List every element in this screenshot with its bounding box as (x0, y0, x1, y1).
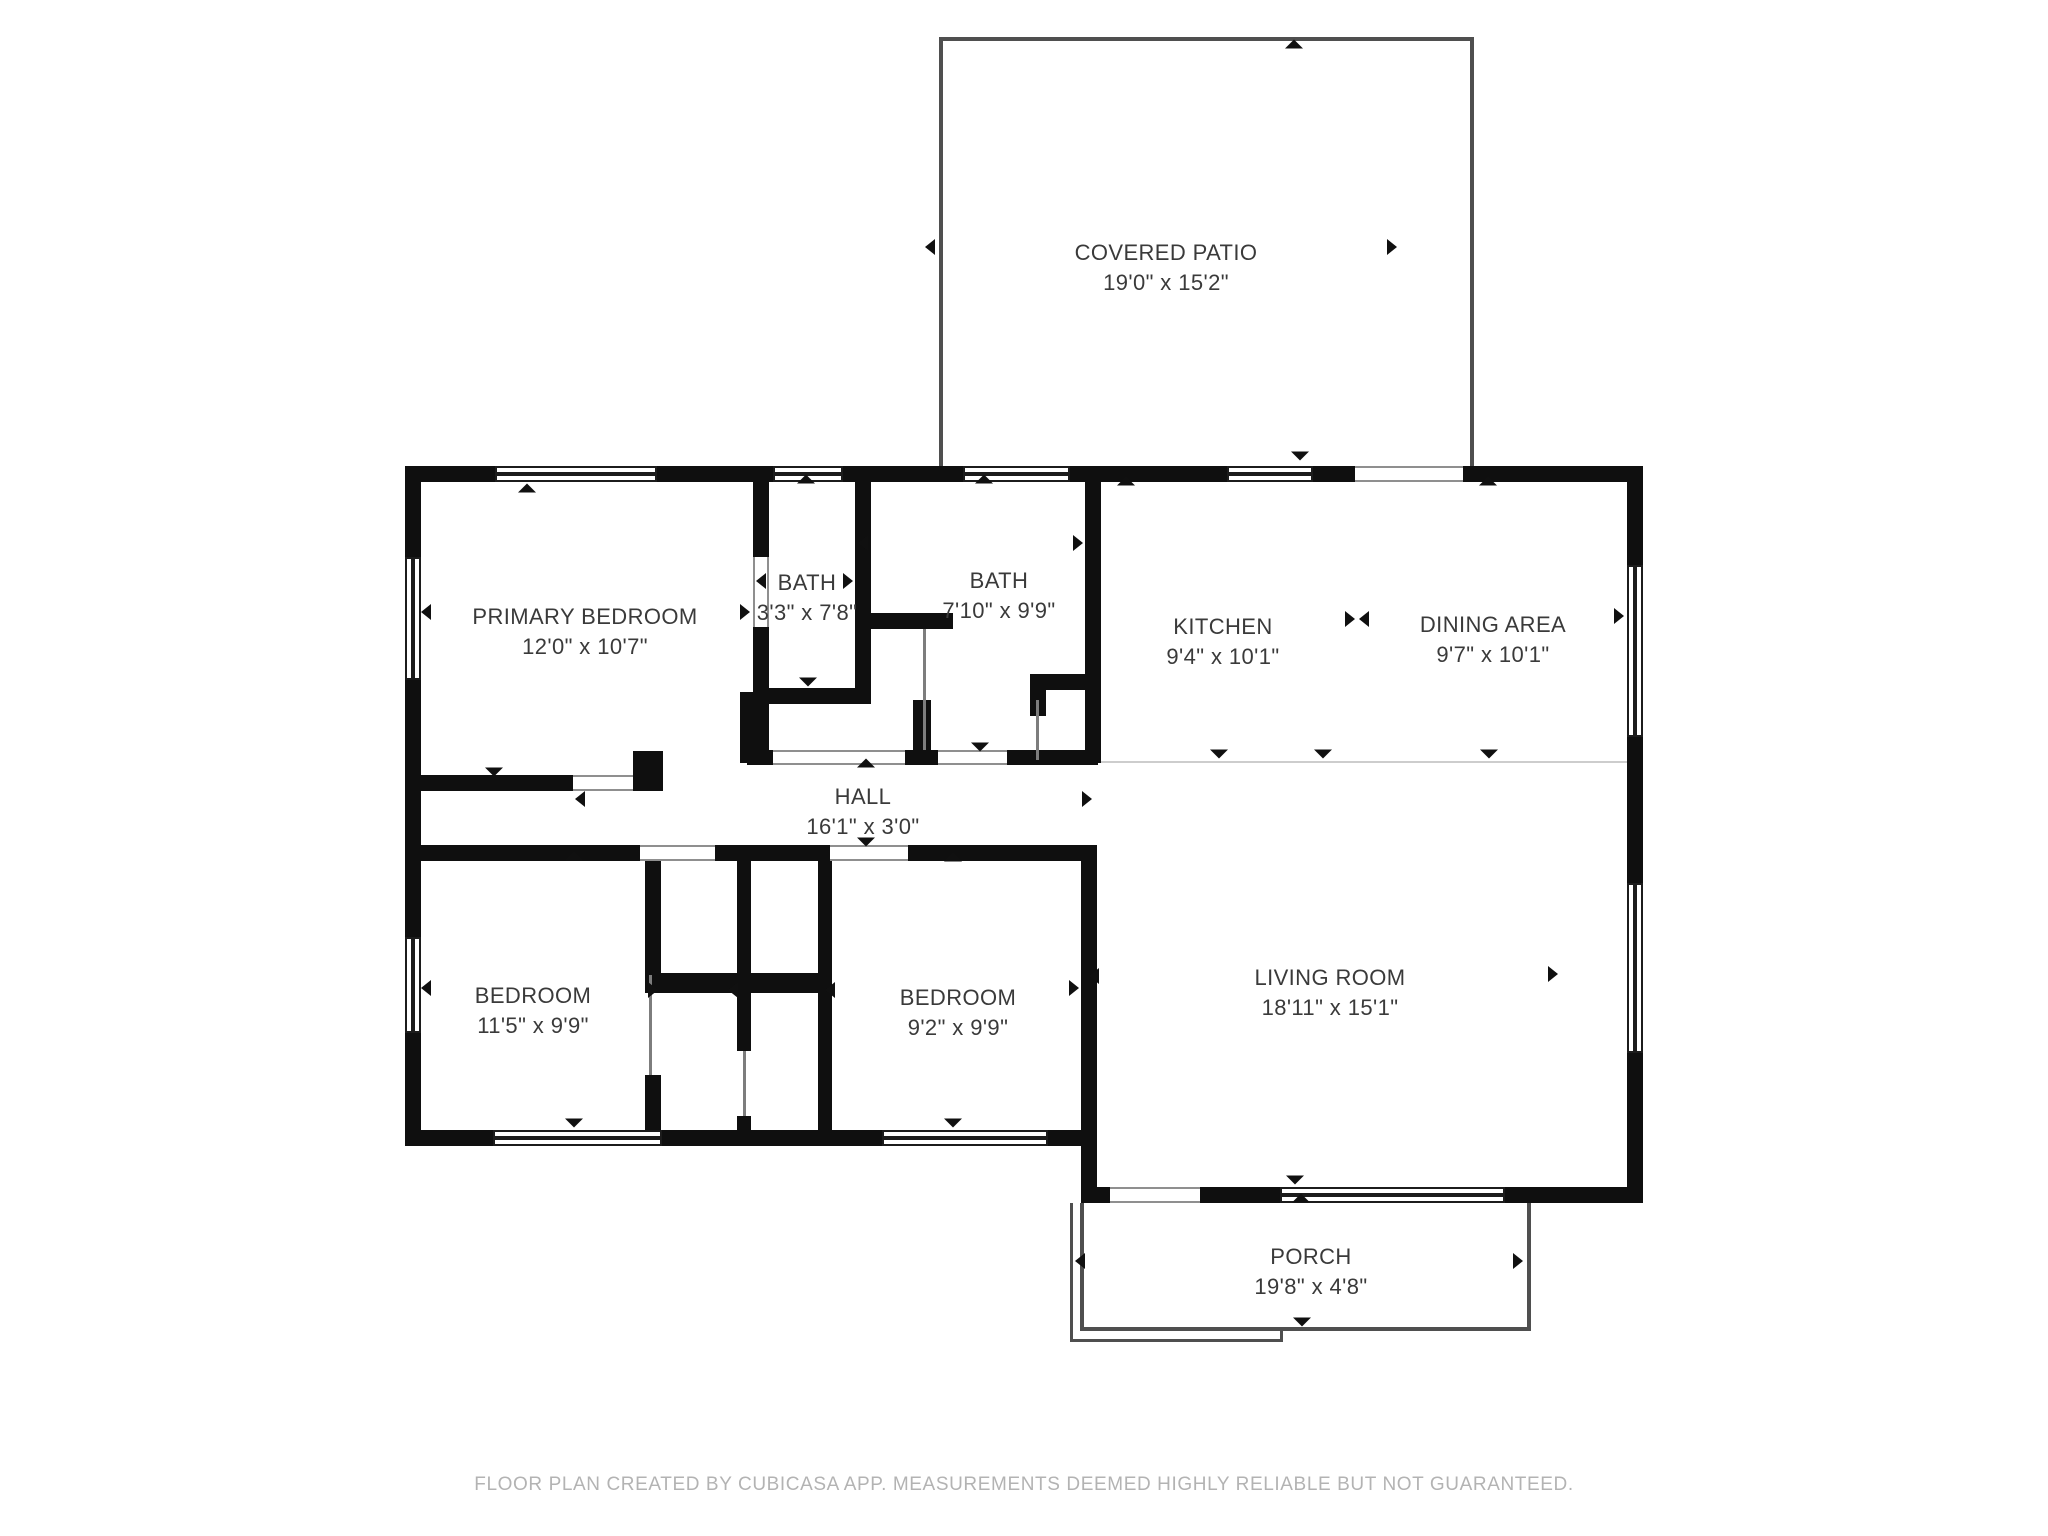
wall (405, 1130, 493, 1146)
measure-arrow-up-icon (518, 484, 536, 493)
window (1227, 466, 1313, 482)
window (1280, 1187, 1505, 1203)
thin-wall (1527, 1203, 1531, 1331)
measure-arrow-down-icon (1286, 1176, 1304, 1185)
door-leaf-line (743, 1051, 746, 1116)
wall (843, 466, 963, 482)
window (405, 557, 421, 680)
room-label: PORCH19'8" x 4'8" (1254, 1242, 1367, 1302)
measure-arrow-right-icon (1513, 1253, 1523, 1269)
wall (753, 688, 855, 704)
room-name: BEDROOM (475, 981, 591, 1011)
door-opening (830, 845, 908, 861)
wall (905, 750, 938, 765)
measure-arrow-up-icon (857, 759, 875, 768)
measure-arrow-up-icon (1285, 40, 1303, 49)
measure-arrow-down-icon (799, 678, 817, 687)
window-glazing (497, 472, 655, 476)
wall (715, 845, 830, 861)
measure-arrow-right-icon (648, 982, 658, 998)
wall (737, 1116, 751, 1132)
window-glazing (1633, 885, 1637, 1051)
room-name: COVERED PATIO (1075, 238, 1258, 268)
measure-arrow-left-icon (1089, 968, 1099, 984)
measure-arrow-left-icon (825, 982, 835, 998)
room-dimensions: 9'7" x 10'1" (1420, 640, 1566, 670)
wall (747, 750, 773, 765)
room-dimensions: 12'0" x 10'7" (472, 632, 697, 662)
footer-disclaimer: FLOOR PLAN CREATED BY CUBICASA APP. MEAS… (0, 1474, 2048, 1496)
measure-arrow-down-icon (1480, 750, 1498, 759)
wall (1081, 861, 1097, 1203)
measure-arrow-up-icon (1117, 477, 1135, 486)
wall (753, 482, 769, 557)
wall (855, 613, 953, 629)
door-leaf-line (923, 629, 926, 750)
wall (1030, 674, 1101, 690)
wall (1627, 466, 1643, 565)
window-glazing (411, 939, 415, 1031)
measure-arrow-right-icon (1069, 980, 1079, 996)
thin-wall (939, 37, 1474, 41)
measure-arrow-down-icon (1210, 750, 1228, 759)
wall (662, 1130, 882, 1146)
thin-wall (1470, 37, 1474, 466)
window (1627, 565, 1643, 737)
room-label: KITCHEN9'4" x 10'1" (1166, 612, 1279, 672)
wall (645, 861, 661, 975)
door-leaf-line (1036, 700, 1039, 760)
thin-wall (1070, 1203, 1073, 1342)
door-opening (773, 750, 905, 765)
window-glazing (495, 1136, 660, 1140)
measure-arrow-left-icon (728, 982, 738, 998)
wall (633, 751, 663, 791)
room-label: LIVING ROOM18'11" x 15'1" (1254, 963, 1405, 1023)
measure-arrow-up-icon (565, 852, 583, 861)
room-dimensions: 7'10" x 9'9" (942, 596, 1055, 626)
measure-arrow-up-icon (797, 475, 815, 484)
measure-arrow-right-icon (1082, 791, 1092, 807)
measure-arrow-right-icon (1548, 966, 1558, 982)
room-dimensions: 11'5" x 9'9" (475, 1011, 591, 1041)
measure-arrow-up-icon (1479, 477, 1497, 486)
room-label: PRIMARY BEDROOM12'0" x 10'7" (472, 602, 697, 662)
wall (657, 466, 773, 482)
thin-wall (1080, 1327, 1531, 1331)
wall (421, 845, 640, 861)
door-opening (1355, 466, 1463, 482)
measure-arrow-left-icon (1075, 1253, 1085, 1269)
wall (908, 845, 1097, 861)
thin-wall (939, 37, 943, 466)
room-dimensions: 3'3" x 7'8" (757, 598, 858, 628)
room-name: LIVING ROOM (1254, 963, 1405, 993)
window (495, 466, 657, 482)
measure-arrow-down-icon (1291, 452, 1309, 461)
thin-wall (1280, 1331, 1283, 1342)
measure-arrow-down-icon (565, 1119, 583, 1128)
measure-arrow-right-icon (1387, 239, 1397, 255)
measure-arrow-right-icon (740, 604, 750, 620)
room-name: DINING AREA (1420, 610, 1566, 640)
measure-arrow-right-icon (1345, 611, 1355, 627)
room-name: HALL (806, 782, 919, 812)
window-glazing (411, 559, 415, 678)
room-dimensions: 9'2" x 9'9" (900, 1013, 1016, 1043)
measure-arrow-right-icon (1073, 535, 1083, 551)
room-label: DINING AREA9'7" x 10'1" (1420, 610, 1566, 670)
window (1627, 883, 1643, 1053)
measure-arrow-right-icon (1614, 608, 1624, 624)
measure-arrow-left-icon (925, 239, 935, 255)
measure-arrow-left-icon (1359, 611, 1369, 627)
wall (1070, 466, 1227, 482)
measure-arrow-left-icon (421, 980, 431, 996)
room-dimensions: 16'1" x 3'0" (806, 812, 919, 842)
room-label: BATH7'10" x 9'9" (942, 566, 1055, 626)
room-name: BATH (942, 566, 1055, 596)
door-opening (1110, 1187, 1200, 1203)
room-dimensions: 18'11" x 15'1" (1254, 993, 1405, 1023)
wall (1007, 750, 1098, 765)
window-glazing (1633, 567, 1637, 735)
window (405, 937, 421, 1033)
wall (855, 482, 871, 704)
door-opening (573, 775, 633, 791)
wall (1200, 1187, 1280, 1203)
wall (1627, 1053, 1643, 1203)
room-name: PRIMARY BEDROOM (472, 602, 697, 632)
wall (421, 775, 573, 791)
room-name: KITCHEN (1166, 612, 1279, 642)
room-label: BEDROOM11'5" x 9'9" (475, 981, 591, 1041)
open-zone-divider (1101, 761, 1627, 763)
measure-arrow-up-icon (944, 853, 962, 862)
door-opening (640, 845, 715, 861)
measure-arrow-up-icon (975, 475, 993, 484)
room-label: BEDROOM9'2" x 9'9" (900, 983, 1016, 1043)
measure-arrow-down-icon (944, 1119, 962, 1128)
window-glazing (1229, 472, 1311, 476)
measure-arrow-left-icon (421, 604, 431, 620)
measure-arrow-down-icon (485, 768, 503, 777)
door-opening (938, 750, 1007, 765)
room-name: PORCH (1254, 1242, 1367, 1272)
measure-arrow-down-icon (971, 743, 989, 752)
measure-arrow-left-icon (575, 791, 585, 807)
wall (1505, 1187, 1643, 1203)
measure-arrow-up-icon (1292, 1194, 1310, 1203)
wall (1085, 482, 1101, 763)
wall (1313, 466, 1355, 482)
room-name: BATH (757, 568, 858, 598)
measure-arrow-down-icon (1314, 750, 1332, 759)
room-dimensions: 9'4" x 10'1" (1166, 642, 1279, 672)
wall (737, 861, 751, 1051)
room-dimensions: 19'0" x 15'2" (1075, 268, 1258, 298)
room-label: BATH3'3" x 7'8" (757, 568, 858, 628)
wall (405, 680, 421, 937)
room-label: COVERED PATIO19'0" x 15'2" (1075, 238, 1258, 298)
floor-plan: COVERED PATIO19'0" x 15'2"PRIMARY BEDROO… (0, 0, 2048, 1536)
wall (645, 1075, 661, 1132)
wall (405, 466, 421, 557)
room-label: HALL16'1" x 3'0" (806, 782, 919, 842)
wall (1627, 737, 1643, 883)
window (493, 1130, 662, 1146)
window-glazing (884, 1136, 1046, 1140)
measure-arrow-down-icon (1293, 1318, 1311, 1327)
room-name: BEDROOM (900, 983, 1016, 1013)
measure-arrow-left-icon (858, 535, 868, 551)
thin-wall (1070, 1339, 1283, 1342)
window (882, 1130, 1048, 1146)
room-dimensions: 19'8" x 4'8" (1254, 1272, 1367, 1302)
window-glazing (1282, 1193, 1503, 1197)
